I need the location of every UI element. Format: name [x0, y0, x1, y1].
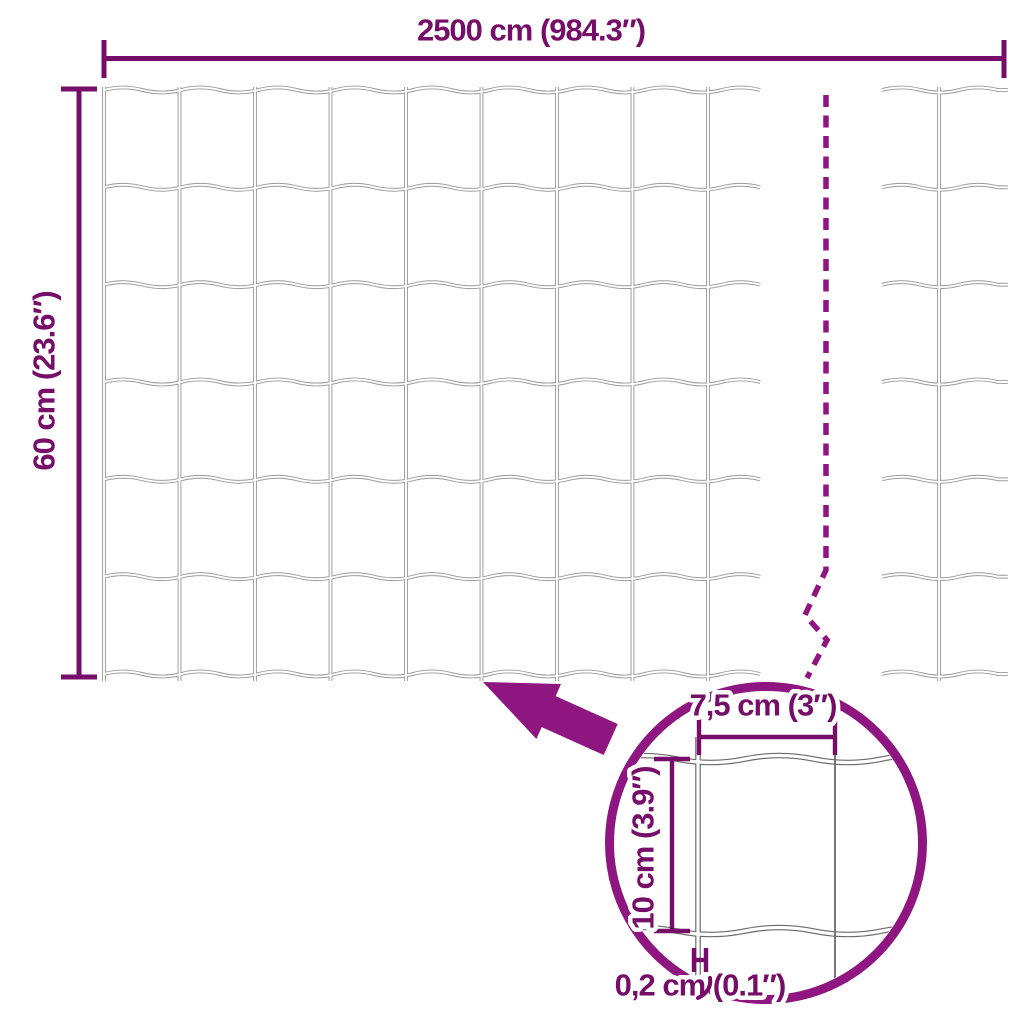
total-height-label: 60 cm (23.6″)	[27, 291, 62, 470]
height-dimension	[61, 89, 97, 677]
fence-mesh-panel-right	[882, 87, 1008, 681]
opening-width-label: 7,5 cm (3″)	[690, 688, 837, 723]
mesh-break-dashed-line-icon	[805, 95, 827, 678]
total-width-label: 2500 cm (984.3″)	[417, 13, 645, 48]
zoom-arrow-icon	[483, 682, 618, 755]
fence-mesh-panel	[104, 87, 760, 681]
opening-height-label: 10 cm (3.9″)	[626, 766, 661, 929]
product-dimension-diagram: 2500 cm (984.3″) 60 cm (23.6″) 7,5 cm (3…	[0, 0, 1024, 1024]
fence-dimension-svg: 2500 cm (984.3″) 60 cm (23.6″) 7,5 cm (3…	[0, 0, 1024, 1024]
